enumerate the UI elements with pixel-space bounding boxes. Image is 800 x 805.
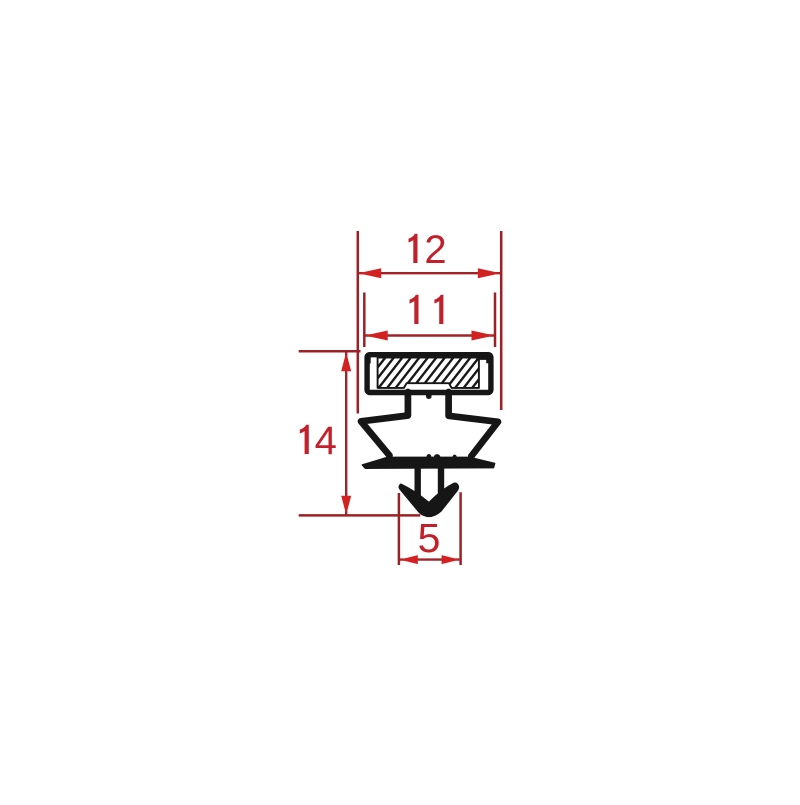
svg-text:4: 4	[315, 419, 337, 463]
svg-text:5: 5	[418, 515, 441, 561]
svg-text:2: 2	[424, 228, 446, 272]
